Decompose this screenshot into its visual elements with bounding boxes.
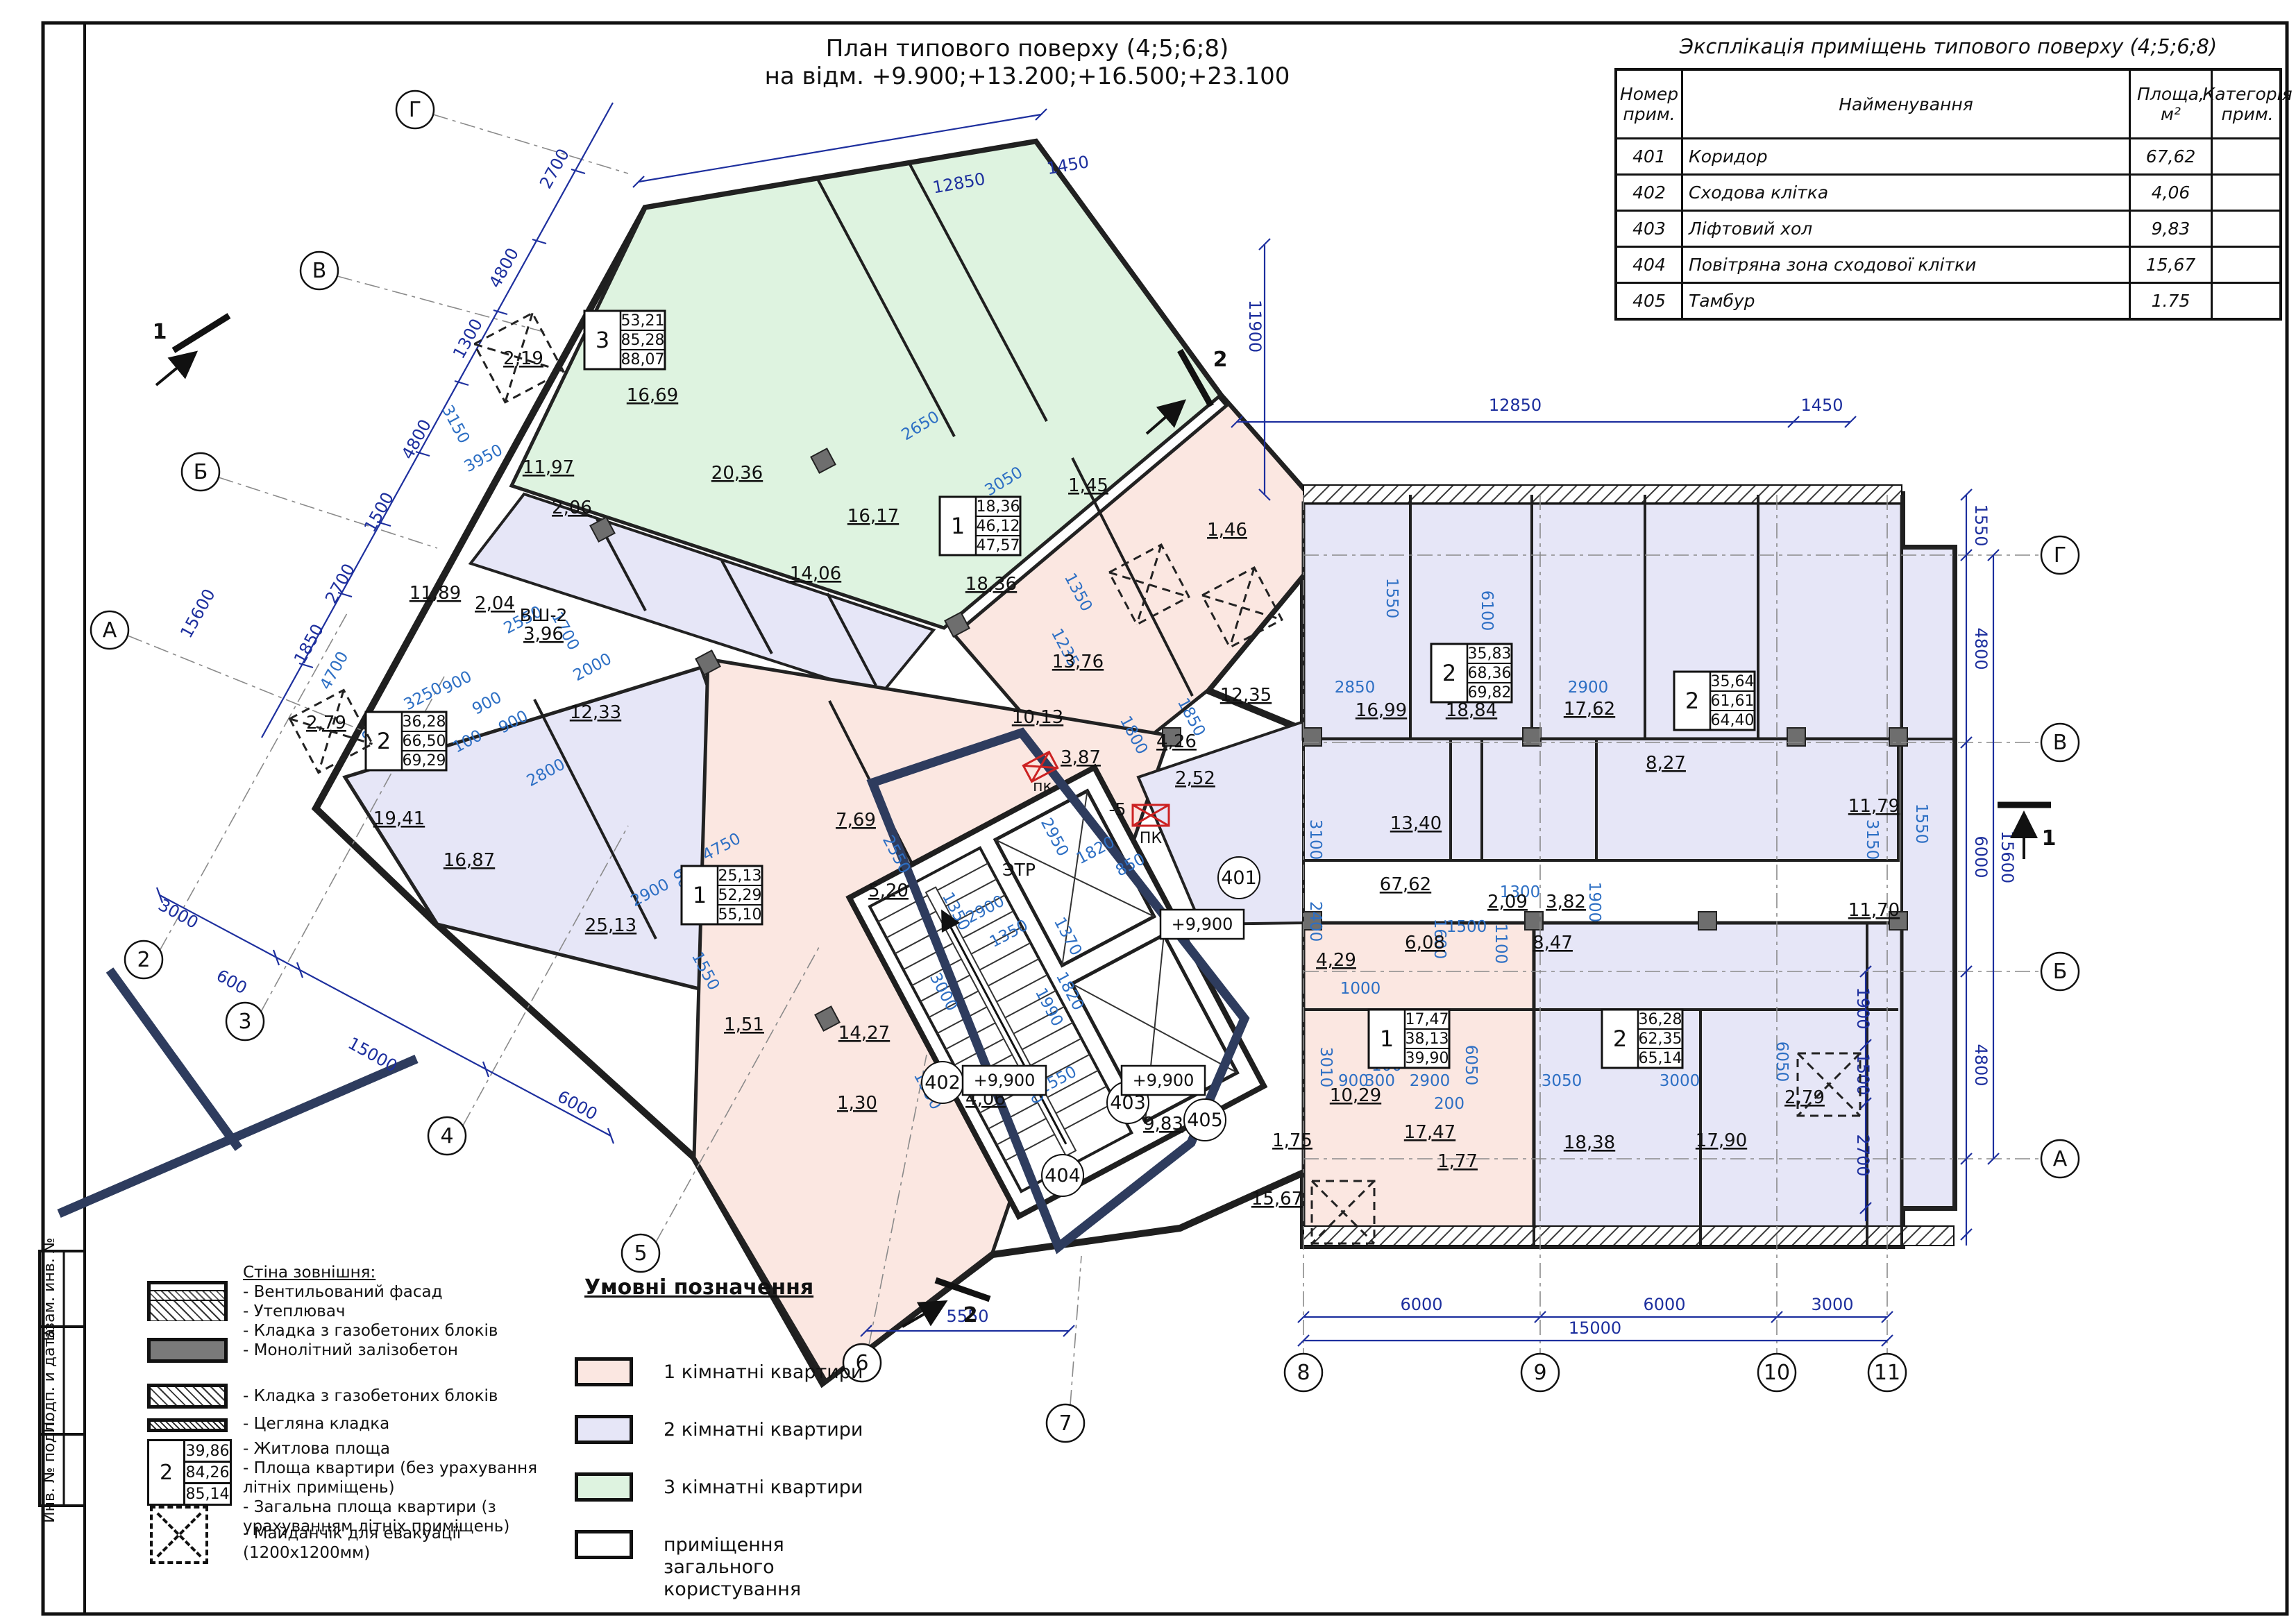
room-area-label: 2,09: [1487, 892, 1528, 912]
apartment-area-value: 69,29: [403, 752, 446, 770]
dim-label: 3150: [438, 402, 473, 447]
apartment-tag: 125,1352,2955,10: [682, 866, 762, 924]
apartment-area-value: 85,28: [621, 332, 665, 349]
room-area-label: 3,96: [523, 624, 564, 645]
axis-bubble-label: 3: [238, 1010, 251, 1034]
dim-label: 15600: [1998, 831, 2017, 883]
axis-bubble-label: В: [2053, 731, 2068, 755]
symbols-legend: Умовні позначення 1 кімнатні квартири2 к…: [575, 1275, 894, 1300]
axis-bubble-label: А: [103, 618, 117, 643]
dim-label: 11900: [1245, 300, 1265, 352]
room-area-label: 1,46: [1207, 520, 1247, 541]
apartment-tag: 236,2866,5069,29: [366, 712, 446, 770]
area-legend-item: - Площа квартири (без урахування літніх …: [243, 1459, 590, 1497]
axis-bubble-label: Б: [194, 460, 208, 484]
elevation-mark: +9,900: [1122, 1066, 1205, 1095]
explication-cell: [2213, 212, 2282, 246]
axis-bubble: В: [301, 252, 338, 289]
dim-label: 1000: [1340, 980, 1381, 998]
axis-bubble: 11: [1868, 1354, 1906, 1391]
title-line2: на відм. +9.900;+13.200;+16.500;+23.100: [736, 62, 1319, 90]
apartment-area-value: 65,14: [1639, 1050, 1682, 1067]
explication-cell: [2213, 284, 2282, 318]
explication-cell: Коридор: [1683, 139, 2131, 173]
axis-bubble-label: 2: [137, 948, 150, 972]
apartment-area-value: 62,35: [1639, 1030, 1682, 1048]
dim-label: 2700: [1853, 1134, 1873, 1176]
dim-label: 3050: [1542, 1072, 1582, 1090]
room-area-label: 13,76: [1052, 652, 1104, 672]
room-area-label: 16,69: [627, 385, 678, 406]
room-number-bubble: 404: [1042, 1155, 1083, 1196]
legend-label: 2 кімнатні квартири: [664, 1419, 886, 1441]
wall-exterior-item: - Вентильований фасад: [243, 1282, 576, 1302]
room-number-label: 401: [1221, 867, 1257, 889]
dim-label: 1900: [1853, 987, 1873, 1029]
room-area-label: 3,87: [1061, 747, 1101, 768]
dim-label: 2900: [1568, 679, 1609, 697]
apartment-rooms-count: 2: [1685, 688, 1699, 714]
dim-label: 3000: [1811, 1295, 1853, 1314]
symbols-legend-item: 2 кімнатні квартири: [575, 1415, 886, 1444]
room-area-label: 1,77: [1437, 1151, 1478, 1172]
room-area-label: 19,41: [373, 808, 425, 829]
apartment-rooms-count: 2: [377, 728, 391, 754]
dim-label: 4800: [1971, 1044, 1991, 1086]
legend-color-swatch: [575, 1530, 633, 1559]
stamp-strip: Взам. инв. №Подп. и датаИнв. № подл.: [40, 1237, 85, 1523]
fire-hydrant-label: пк: [1033, 778, 1052, 795]
apartment-area-value: 38,13: [1406, 1030, 1449, 1048]
axis-bubble: 10: [1758, 1354, 1796, 1391]
explication-cell: Тамбур: [1683, 284, 2131, 318]
room-area-label: 17,90: [1696, 1130, 1747, 1151]
dim-label: 1550: [1383, 578, 1401, 619]
room-area-label: 5,20: [868, 881, 909, 901]
dim-label: 6050: [1462, 1045, 1480, 1086]
explication-cell: 15,67: [2131, 248, 2213, 282]
explication-cell: 9,83: [2131, 212, 2213, 246]
explication-cell: [2213, 176, 2282, 210]
section-number: 1: [2042, 826, 2057, 851]
area-legend-item: - Житлова площа: [243, 1439, 590, 1459]
apartment-area-value: 36,28: [1639, 1011, 1682, 1028]
symbols-legend-item: 3 кімнатні квартири: [575, 1472, 886, 1502]
apartment-tag: 235,8368,3669,82: [1431, 644, 1512, 702]
axis-bubble-label: 7: [1058, 1411, 1072, 1436]
axis-bubble-label: 4: [440, 1124, 453, 1148]
explication-cell: 405: [1617, 284, 1683, 318]
dim-label: 2700: [321, 561, 359, 607]
dim-label: 200: [1434, 1095, 1464, 1113]
explication-cell: 67,62: [2131, 139, 2213, 173]
note-label: -5: [1109, 799, 1126, 819]
evac-legend-label: - Майданчік для евакуації (1200х1200мм): [243, 1524, 590, 1563]
room-area-label: 15,67: [1251, 1189, 1303, 1209]
legend-label: 1 кімнатні квартири: [664, 1361, 886, 1384]
section-number: 2: [1213, 348, 1228, 372]
room-area-label: 18,36: [965, 574, 1017, 595]
apartment-area-value: 18,36: [977, 498, 1020, 516]
dim-label: 3010: [1317, 1047, 1335, 1088]
room-area-label: 9,83: [1143, 1114, 1183, 1135]
legend-color-swatch: [575, 1472, 633, 1502]
axis-bubble: Б: [182, 453, 219, 491]
room-area-label: 11,97: [523, 457, 574, 478]
explication-cell: [2213, 139, 2282, 173]
room-area-label: 12,35: [1220, 685, 1272, 706]
room-area-label: 16,99: [1356, 700, 1407, 721]
room-number-label: 404: [1045, 1165, 1081, 1187]
dim-label: 4800: [1971, 627, 1991, 670]
room-area-label: 1,75: [1272, 1130, 1312, 1151]
room-area-label: 8,27: [1646, 753, 1686, 774]
symbols-legend-item: приміщення загального користування: [575, 1530, 886, 1601]
drawing-title: План типового поверху (4;5;6;8) на відм.…: [736, 35, 1319, 90]
section-mark: 1: [153, 316, 229, 385]
explication-row: 405Тамбур1.75: [1617, 284, 2279, 318]
legend-label: 3 кімнатні квартири: [664, 1477, 886, 1499]
symbols-legend-title: Умовні позначення: [584, 1275, 894, 1300]
explication-cell: 1.75: [2131, 284, 2213, 318]
dim-label: 12850: [1489, 396, 1542, 415]
apartment-tag: 235,6461,6164,40: [1674, 672, 1755, 730]
axis-bubble-label: В: [312, 259, 327, 283]
col-num: Номер прим.: [1617, 71, 1683, 137]
room-area-label: 7,69: [836, 810, 876, 831]
explication-cell: 4,06: [2131, 176, 2213, 210]
explication-row: 404Повітряна зона сходової клітки15,67: [1617, 248, 2279, 284]
hall-left-mid: [1303, 739, 1451, 860]
dim-label: 15000: [345, 1033, 400, 1076]
dim-label: 1100: [1492, 924, 1510, 965]
apartment-area-value: 64,40: [1711, 712, 1755, 729]
room-area-label: 67,62: [1380, 874, 1431, 895]
explication-cell: 403: [1617, 212, 1683, 246]
explication-row: 403Ліфтовий хол9,83: [1617, 212, 2279, 248]
wall-gasblock-label: - Кладка з газобетоних блоків: [243, 1386, 576, 1406]
dim-label: 4800: [485, 245, 523, 291]
room-area-label: 18,38: [1564, 1132, 1615, 1153]
col-area: Площа, м²: [2131, 71, 2213, 137]
wall-exterior-item: - Кладка з газобетоних блоків: [243, 1321, 576, 1341]
room-area-label: 17,62: [1564, 699, 1615, 720]
room-area-label: 10,13: [1012, 707, 1063, 728]
apartment-area-value: 69,82: [1468, 684, 1512, 702]
col-cat: Категорія прим.: [2213, 71, 2282, 137]
explication-table: Эксплікація приміщень типового поверху (…: [1614, 35, 2282, 321]
axis-bubble: В: [2041, 724, 2079, 761]
dim-label: 1900: [1585, 882, 1603, 923]
explication-cell: Ліфтовий хол: [1683, 212, 2131, 246]
room-number-bubble: 405: [1184, 1099, 1226, 1141]
dim-label: 6000: [1400, 1295, 1442, 1314]
apartment-rooms-count: 2: [1442, 660, 1456, 686]
axis-bubble-label: А: [2053, 1147, 2068, 1171]
apartment-area-value: 61,61: [1711, 692, 1755, 710]
section-number: 2: [963, 1303, 978, 1327]
room-area-label: 25,13: [585, 915, 636, 936]
room-number-bubble: 402: [922, 1062, 963, 1103]
elevation-mark: +9,900: [1160, 910, 1244, 939]
axis-bubble-label: 11: [1874, 1361, 1900, 1385]
apartment-area-value: 66,50: [403, 733, 446, 750]
dim-label: 6100: [1478, 590, 1496, 631]
apartment-tag: 353,2185,2888,07: [584, 311, 665, 369]
apartment-area-value: 88,07: [621, 351, 665, 368]
room-area-label: 10,29: [1330, 1085, 1381, 1106]
room-area-label: 2,52: [1175, 768, 1215, 789]
note-label: ВШ-2: [520, 605, 568, 625]
dim-label: 4700: [316, 649, 352, 693]
axis-bubble: 5: [622, 1234, 659, 1272]
room-area-label: 14,06: [790, 563, 841, 584]
elevation-label: +9,900: [1172, 915, 1233, 934]
dim-label: 6050: [1773, 1042, 1791, 1082]
apartment-area-value: 47,57: [977, 537, 1020, 554]
dim-label: 1850: [290, 621, 328, 668]
axis-bubble-label: Б: [2053, 960, 2068, 984]
explication-cell: 401: [1617, 139, 1683, 173]
stamp-label: Инв. № подл.: [41, 1418, 58, 1523]
apartment-area-value: 35,64: [1711, 673, 1755, 690]
axis-bubble-label: 10: [1764, 1361, 1790, 1385]
room-area-label: 17,47: [1404, 1122, 1455, 1143]
note-label: ЭТР: [1002, 860, 1036, 880]
explication-row: 402Сходова клітка4,06: [1617, 176, 2279, 212]
dim-label: 600: [213, 966, 251, 999]
dim-label: 3000: [155, 895, 201, 933]
room-area-label: 20,36: [711, 463, 763, 484]
elevation-mark: +9,900: [963, 1066, 1046, 1095]
evac-legend-swatch: [150, 1506, 208, 1564]
dim-label: 6000: [1971, 835, 1991, 878]
apartment-rooms-count: 1: [693, 882, 707, 908]
room-area-label: 2,79: [306, 713, 346, 733]
apartment-area-value: 55,10: [718, 906, 762, 924]
dim-label: 6000: [1643, 1295, 1685, 1314]
dim-label: 1550: [1912, 804, 1930, 844]
room-area-label: 4,26: [1156, 731, 1197, 752]
dim-label: 1550: [1971, 504, 1991, 546]
explication-cell: 404: [1617, 248, 1683, 282]
axis-bubble: 2: [125, 941, 162, 978]
legend-color-swatch: [575, 1415, 633, 1444]
right-balcony-strip: [1902, 548, 1954, 1207]
apartment-tag: 236,2862,3565,14: [1602, 1010, 1682, 1068]
axis-bubble-label: Г: [2054, 543, 2066, 568]
room-number-label: 402: [925, 1072, 961, 1094]
dim-label: 1450: [1800, 396, 1843, 415]
wall-brick-label: - Цегляна кладка: [243, 1414, 576, 1434]
dim-label: 1500: [360, 489, 398, 536]
title-line1: План типового поверху (4;5;6;8): [736, 35, 1319, 62]
stamp-label: Взам. инв. №: [41, 1237, 58, 1341]
stamp-label: Подп. и дата: [41, 1329, 58, 1433]
wall-exterior-heading: Стіна зовнішня:: [243, 1263, 576, 1282]
axis-bubble: 8: [1285, 1354, 1322, 1391]
dim-label: 1500: [1446, 918, 1487, 936]
dim-label: 2900: [1410, 1072, 1451, 1090]
apartment-area-value: 46,12: [977, 518, 1020, 535]
axis-bubble: А: [91, 611, 128, 649]
elevation-label: +9,900: [974, 1071, 1036, 1090]
explication-row: 401Коридор67,62: [1617, 139, 2279, 176]
explication-title: Эксплікація приміщень типового поверху (…: [1614, 35, 2282, 58]
room-number-bubble: 401: [1218, 857, 1260, 899]
dim-label: 3000: [1660, 1072, 1700, 1090]
room-area-label: 11,70: [1848, 900, 1900, 921]
dim-label: 2850: [1335, 679, 1376, 697]
room-area-label: 2,04: [475, 593, 515, 614]
explication-cell: [2213, 248, 2282, 282]
room-area-label: 2,79: [1784, 1087, 1825, 1108]
apartment-rooms-count: 2: [1613, 1026, 1627, 1052]
room-area-label: 16,17: [847, 506, 899, 527]
axis-bubble-label: Г: [409, 98, 421, 122]
room-area-label: 2,19: [503, 348, 543, 369]
axis-bubble-label: 5: [634, 1241, 647, 1266]
axis-bubble: 9: [1521, 1354, 1559, 1391]
explication-header: Номер прим. Найменування Площа, м² Катег…: [1617, 71, 2279, 139]
axis-bubble: Г: [396, 91, 434, 128]
room-area-label: 4,29: [1316, 950, 1356, 971]
dim-label: 3150: [1863, 819, 1881, 860]
explication-cell: Сходова клітка: [1683, 176, 2131, 210]
room-area-label: 6,08: [1405, 933, 1445, 953]
apartment-area-value: 17,47: [1406, 1011, 1449, 1028]
wall-monolith-label: - Монолітний залізобетон: [243, 1341, 576, 1360]
axis-bubble-label: 9: [1533, 1361, 1546, 1385]
area-sample-tag: 2 39,86 84,26 85,14: [147, 1439, 232, 1506]
apartment-area-value: 25,13: [718, 867, 762, 885]
dim-label: 1500: [1853, 1053, 1873, 1095]
room-number-label: 405: [1187, 1110, 1223, 1131]
fire-hydrant-label: ПК: [1140, 830, 1163, 847]
room-area-label: 1,45: [1068, 475, 1108, 496]
axis-bubble: 7: [1047, 1404, 1084, 1442]
apartment-area-value: 52,29: [718, 887, 762, 904]
room-area-label: 16,87: [444, 850, 495, 871]
dim-label: 3100: [1306, 819, 1324, 860]
room-area-label: 1,51: [724, 1014, 764, 1035]
room-area-label: 2,06: [552, 498, 592, 518]
apartment-area-value: 36,28: [403, 713, 446, 731]
room-area-label: 11,79: [1848, 796, 1900, 817]
apartment-area-value: 35,83: [1468, 645, 1512, 663]
explication-cell: 402: [1617, 176, 1683, 210]
dim-label: 15600: [176, 586, 219, 641]
axis-bubble: 4: [428, 1117, 466, 1155]
axis-bubble: Г: [2041, 536, 2079, 574]
apartment-tag: 117,4738,1339,90: [1369, 1010, 1449, 1068]
axis-bubble: Б: [2041, 953, 2079, 990]
dim-label: 2400: [1306, 901, 1324, 942]
col-name: Найменування: [1683, 71, 2131, 137]
apartment-area-value: 53,21: [621, 312, 665, 330]
symbols-legend-item: 1 кімнатні квартири: [575, 1357, 886, 1386]
axis-bubble: 3: [226, 1003, 264, 1040]
dim-label: 1450: [1045, 152, 1090, 178]
elevation-label: +9,900: [1133, 1071, 1195, 1090]
apartment-rooms-count: 1: [951, 513, 965, 539]
room-area-label: 13,40: [1390, 813, 1442, 834]
room-area-label: 1,30: [837, 1093, 877, 1114]
room-area-label: 11,89: [410, 583, 461, 604]
apartment-rooms-count: 3: [596, 327, 609, 353]
apartment-area-value: 68,36: [1468, 665, 1512, 682]
wall-exterior-item: - Утеплювач: [243, 1302, 576, 1321]
apartment-tag: 118,3646,1247,57: [940, 497, 1020, 555]
room-area-label: 3,82: [1546, 892, 1586, 912]
apartment-rooms-count: 1: [1380, 1026, 1394, 1052]
room-area-label: 8,47: [1533, 933, 1573, 953]
explication-cell: Повітряна зона сходової клітки: [1683, 248, 2131, 282]
room-area-label: 12,33: [570, 702, 621, 723]
apartment-area-value: 39,90: [1406, 1050, 1449, 1067]
legend-color-swatch: [575, 1357, 633, 1386]
room-area-label: 14,27: [838, 1023, 890, 1044]
legend-label: приміщення загального користування: [664, 1534, 886, 1601]
dim-label: 15000: [1569, 1318, 1621, 1338]
explication-rows: 401Коридор67,62402Сходова клітка4,06403Л…: [1617, 139, 2279, 318]
axis-bubble: А: [2041, 1140, 2079, 1178]
section-number: 1: [153, 320, 167, 344]
drawing-sheet: { "title": { "line1": "План типового пов…: [0, 0, 2296, 1623]
axis-bubble-label: 8: [1297, 1361, 1310, 1385]
